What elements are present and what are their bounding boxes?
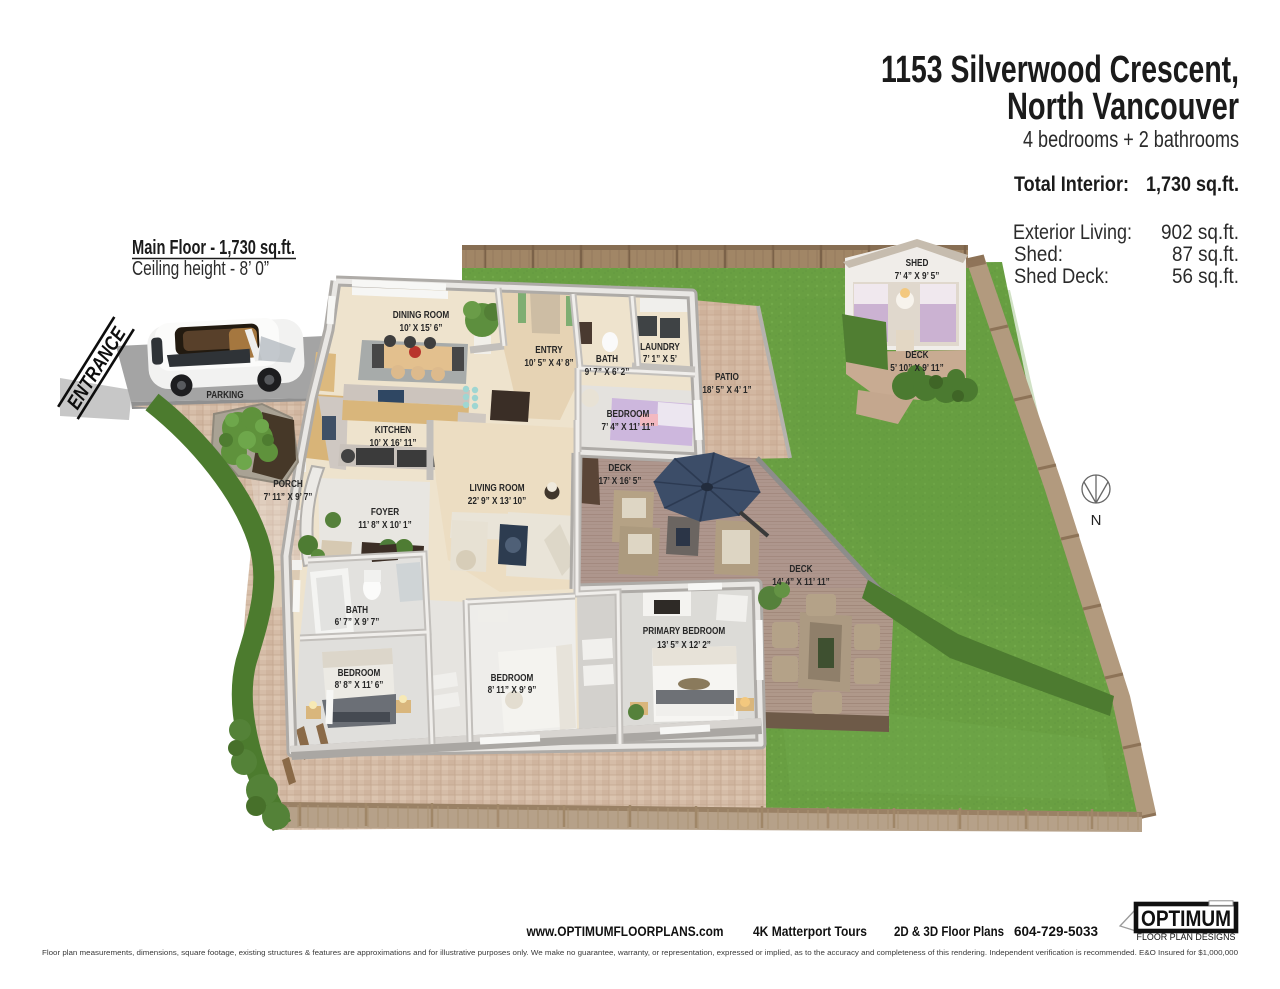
svg-text:87 sq.ft.: 87 sq.ft.	[1172, 243, 1239, 266]
svg-text:Shed:: Shed:	[1014, 243, 1063, 266]
svg-text:7’ 11” X 9’ 7”: 7’ 11” X 9’ 7”	[264, 491, 313, 503]
svg-text:11’ 8” X 10’ 1”: 11’ 8” X 10’ 1”	[358, 519, 411, 531]
svg-text:DECK: DECK	[905, 349, 929, 361]
svg-text:9’ 7” X 6’ 2”: 9’ 7” X 6’ 2”	[585, 366, 630, 378]
svg-text:DECK: DECK	[789, 563, 813, 575]
svg-text:7’ 4” X 11’ 11”: 7’ 4” X 11’ 11”	[602, 421, 655, 433]
svg-text:SHED: SHED	[906, 257, 929, 269]
svg-text:604-729-5033: 604-729-5033	[1014, 924, 1098, 939]
svg-text:ENTRANCE: ENTRANCE	[63, 323, 131, 413]
svg-text:7’ 1” X 5’: 7’ 1” X 5’	[643, 353, 677, 365]
svg-text:PORCH: PORCH	[273, 478, 303, 490]
svg-text:LAUNDRY: LAUNDRY	[640, 341, 680, 353]
svg-text:ENTRY: ENTRY	[535, 344, 563, 356]
svg-text:13’ 5” X 12’ 2”: 13’ 5” X 12’ 2”	[657, 639, 711, 651]
svg-text:N: N	[1091, 512, 1102, 529]
svg-text:PARKING: PARKING	[206, 389, 243, 401]
svg-text:Ceiling height - 8’ 0”: Ceiling height - 8’ 0”	[132, 258, 269, 280]
svg-text:Exterior Living:: Exterior Living:	[1013, 221, 1132, 244]
svg-text:BEDROOM: BEDROOM	[338, 667, 381, 679]
svg-text:Shed Deck:: Shed Deck:	[1014, 265, 1109, 288]
svg-text:8’ 11” X 9’ 9”: 8’ 11” X 9’ 9”	[488, 684, 537, 696]
svg-text:902 sq.ft.: 902 sq.ft.	[1161, 221, 1239, 244]
svg-text:BATH: BATH	[596, 353, 618, 365]
svg-text:PATIO: PATIO	[715, 371, 739, 383]
svg-text:1,730 sq.ft.: 1,730 sq.ft.	[1146, 173, 1239, 196]
svg-text:7’ 4” X 9’ 5”: 7’ 4” X 9’ 5”	[895, 270, 940, 282]
svg-text:2D & 3D Floor Plans: 2D & 3D Floor Plans	[894, 924, 1004, 939]
svg-text:BEDROOM: BEDROOM	[607, 408, 650, 420]
svg-text:56 sq.ft.: 56 sq.ft.	[1172, 265, 1239, 288]
svg-text:DECK: DECK	[608, 462, 632, 474]
svg-text:Total Interior:: Total Interior:	[1014, 173, 1129, 196]
svg-text:BATH: BATH	[346, 604, 368, 616]
svg-text:Floor plan measurements, dimen: Floor plan measurements, dimensions, squ…	[42, 948, 1238, 957]
svg-text:5’ 10” X 9’ 11”: 5’ 10” X 9’ 11”	[890, 362, 943, 374]
svg-text:17’ X 16’ 5”: 17’ X 16’ 5”	[599, 475, 642, 487]
svg-text:4 bedrooms + 2 bathrooms: 4 bedrooms + 2 bathrooms	[1023, 126, 1239, 152]
svg-text:22’ 9” X 13’ 10”: 22’ 9” X 13’ 10”	[468, 495, 526, 507]
svg-text:4K Matterport Tours: 4K Matterport Tours	[753, 924, 867, 939]
svg-text:North Vancouver: North Vancouver	[1007, 86, 1239, 128]
svg-text:FOYER: FOYER	[371, 506, 400, 518]
svg-text:DINING ROOM: DINING ROOM	[393, 309, 450, 321]
svg-text:KITCHEN: KITCHEN	[375, 424, 411, 436]
svg-text:LIVING ROOM: LIVING ROOM	[469, 482, 524, 494]
svg-text:8’ 8” X 11’ 6”: 8’ 8” X 11’ 6”	[335, 679, 384, 691]
svg-text:10’ X 15’ 6”: 10’ X 15’ 6”	[400, 322, 443, 334]
svg-text:PRIMARY BEDROOM: PRIMARY BEDROOM	[643, 625, 726, 637]
svg-text:14’ 4” X 11’ 11”: 14’ 4” X 11’ 11”	[772, 576, 830, 588]
svg-text:18’ 5” X 4’ 1”: 18’ 5” X 4’ 1”	[702, 384, 751, 396]
svg-text:OPTIMUM: OPTIMUM	[1141, 906, 1231, 931]
svg-text:Main Floor - 1,730 sq.ft.: Main Floor - 1,730 sq.ft.	[132, 237, 295, 259]
svg-text:FLOOR PLAN DESIGNS: FLOOR PLAN DESIGNS	[1137, 932, 1236, 943]
svg-text:BEDROOM: BEDROOM	[491, 672, 534, 684]
svg-text:6’ 7” X 9’ 7”: 6’ 7” X 9’ 7”	[335, 616, 380, 628]
svg-text:10’ 5” X 4’ 8”: 10’ 5” X 4’ 8”	[524, 357, 573, 369]
svg-text:10’ X 16’ 11”: 10’ X 16’ 11”	[370, 437, 417, 449]
svg-text:www.OPTIMUMFLOORPLANS.com: www.OPTIMUMFLOORPLANS.com	[526, 924, 724, 939]
svg-text:1153 Silverwood Crescent,: 1153 Silverwood Crescent,	[881, 49, 1239, 91]
